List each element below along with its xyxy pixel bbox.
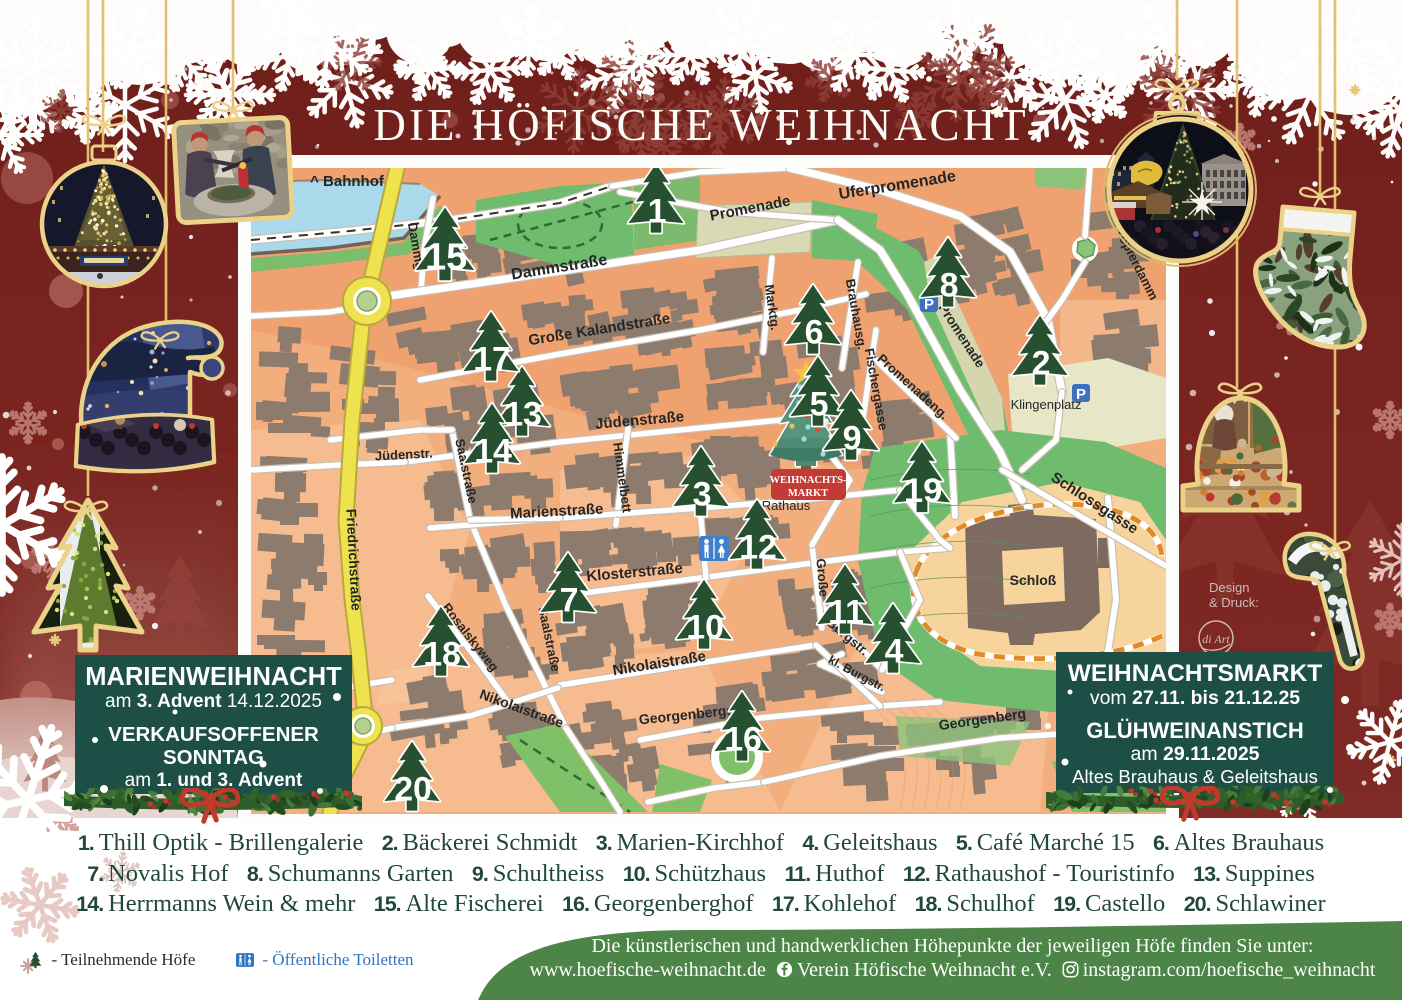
svg-text:di Art: di Art [1202, 632, 1230, 646]
svg-text:Design: Design [1209, 580, 1249, 595]
svg-text:& Druck:: & Druck: [1209, 595, 1259, 610]
